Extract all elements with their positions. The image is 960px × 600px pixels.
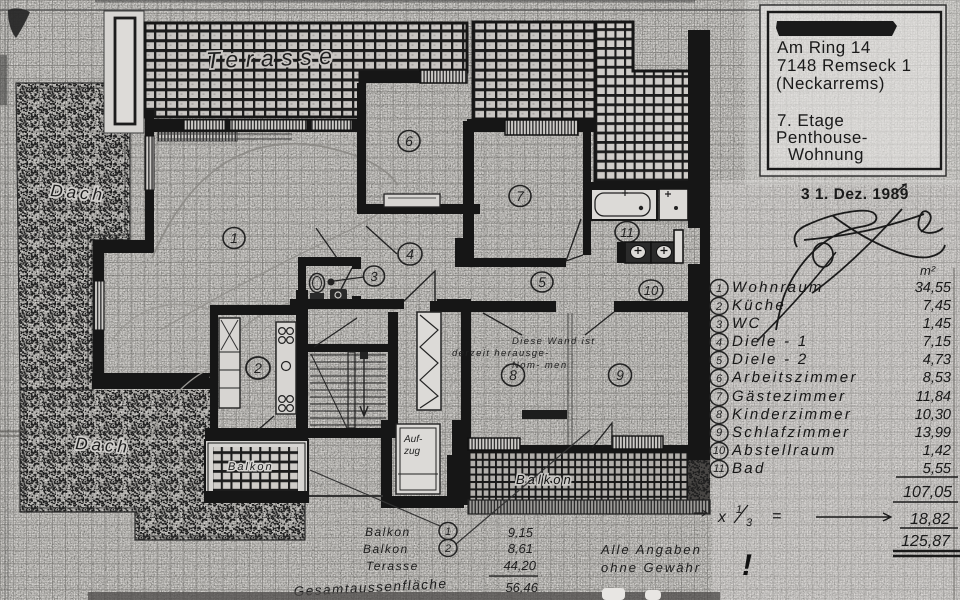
svg-text:Bad: Bad xyxy=(732,460,766,477)
svg-text:Alle Angaben: Alle Angaben xyxy=(600,542,702,557)
svg-text:2: 2 xyxy=(715,301,722,313)
svg-text:8,53: 8,53 xyxy=(923,370,951,386)
svg-text:107,05: 107,05 xyxy=(903,484,952,501)
svg-text:1: 1 xyxy=(230,230,238,246)
svg-text:Küche: Küche xyxy=(732,297,786,314)
svg-text:10: 10 xyxy=(713,445,726,457)
svg-text:44,20: 44,20 xyxy=(503,558,536,573)
svg-text:8: 8 xyxy=(509,367,517,383)
svg-text:Nom- men: Nom- men xyxy=(512,360,568,371)
svg-text:7,15: 7,15 xyxy=(923,334,952,350)
svg-text:Arbeitszimmer: Arbeitszimmer xyxy=(731,369,858,386)
svg-text:10: 10 xyxy=(644,283,659,298)
svg-text:3: 3 xyxy=(370,269,378,284)
svg-text:34,55: 34,55 xyxy=(915,280,952,296)
svg-text:5: 5 xyxy=(716,355,723,367)
svg-text:Schlafzimmer: Schlafzimmer xyxy=(732,424,850,441)
svg-text:7148 Remseck 1: 7148 Remseck 1 xyxy=(777,56,912,75)
svg-text:Abstellraum: Abstellraum xyxy=(731,442,837,459)
svg-text:7: 7 xyxy=(716,391,723,403)
svg-text:3: 3 xyxy=(746,517,753,529)
svg-text:3 1. Dez. 1989: 3 1. Dez. 1989 xyxy=(801,186,909,203)
svg-text:11: 11 xyxy=(713,463,724,475)
svg-text:Kinderzimmer: Kinderzimmer xyxy=(732,406,852,423)
svg-text:18,82: 18,82 xyxy=(910,511,950,528)
svg-text:7: 7 xyxy=(516,188,525,204)
svg-text:Balkon: Balkon xyxy=(228,461,274,473)
svg-text:10,30: 10,30 xyxy=(915,407,951,423)
svg-text:Terasse: Terasse xyxy=(206,43,340,74)
svg-text:1,45: 1,45 xyxy=(923,316,952,332)
svg-text:m²: m² xyxy=(920,263,936,278)
svg-text:5: 5 xyxy=(538,274,546,290)
svg-text:125,87: 125,87 xyxy=(901,533,951,550)
svg-text:derzeit herausge-: derzeit herausge- xyxy=(452,348,550,359)
svg-text:2: 2 xyxy=(253,360,262,376)
svg-text:1: 1 xyxy=(716,283,722,295)
svg-text:3: 3 xyxy=(716,319,723,331)
svg-text:1,42: 1,42 xyxy=(923,443,951,459)
svg-text:Dach: Dach xyxy=(75,434,132,457)
svg-text:4: 4 xyxy=(406,246,414,262)
svg-text:zug: zug xyxy=(403,446,421,457)
svg-text:Balkon: Balkon xyxy=(516,472,574,487)
svg-text:1: 1 xyxy=(445,526,451,538)
svg-text:Am Ring 14: Am Ring 14 xyxy=(777,38,871,57)
svg-text:ohne Gewähr: ohne Gewähr xyxy=(601,560,701,575)
svg-text:Diese Wand ist: Diese Wand ist xyxy=(512,336,595,347)
svg-text:9: 9 xyxy=(716,427,722,439)
svg-text:Gästezimmer: Gästezimmer xyxy=(732,388,846,405)
svg-text:WC: WC xyxy=(732,315,762,332)
svg-text:Diele - 1: Diele - 1 xyxy=(732,333,809,350)
svg-text:7,45: 7,45 xyxy=(923,298,952,314)
svg-text:Wohnraum: Wohnraum xyxy=(732,279,824,296)
svg-text:11: 11 xyxy=(620,225,634,240)
svg-text:x: x xyxy=(717,509,727,526)
svg-text:(Neckarrems): (Neckarrems) xyxy=(776,74,885,93)
svg-text:Balkon: Balkon xyxy=(365,525,411,539)
svg-text:4: 4 xyxy=(716,337,722,349)
svg-text:13,99: 13,99 xyxy=(915,425,951,441)
svg-text:8,61: 8,61 xyxy=(508,541,533,556)
svg-text:4,73: 4,73 xyxy=(923,352,951,368)
svg-text:9,15: 9,15 xyxy=(508,525,534,540)
svg-text:8: 8 xyxy=(716,409,723,421)
svg-text:6: 6 xyxy=(716,373,723,385)
svg-text:11,84: 11,84 xyxy=(916,389,951,405)
svg-text:Balkon: Balkon xyxy=(363,542,409,556)
svg-text:Terasse: Terasse xyxy=(366,559,419,573)
svg-text:9: 9 xyxy=(616,367,624,383)
svg-text:5,55: 5,55 xyxy=(923,461,952,477)
svg-text:!: ! xyxy=(742,549,752,582)
svg-text:Diele - 2: Diele - 2 xyxy=(732,351,809,368)
svg-text:Auf-: Auf- xyxy=(403,434,423,445)
svg-text:=: = xyxy=(772,508,781,525)
svg-text:6: 6 xyxy=(405,133,413,149)
svg-text:2: 2 xyxy=(444,543,451,555)
svg-text:Wohnung: Wohnung xyxy=(788,145,864,164)
